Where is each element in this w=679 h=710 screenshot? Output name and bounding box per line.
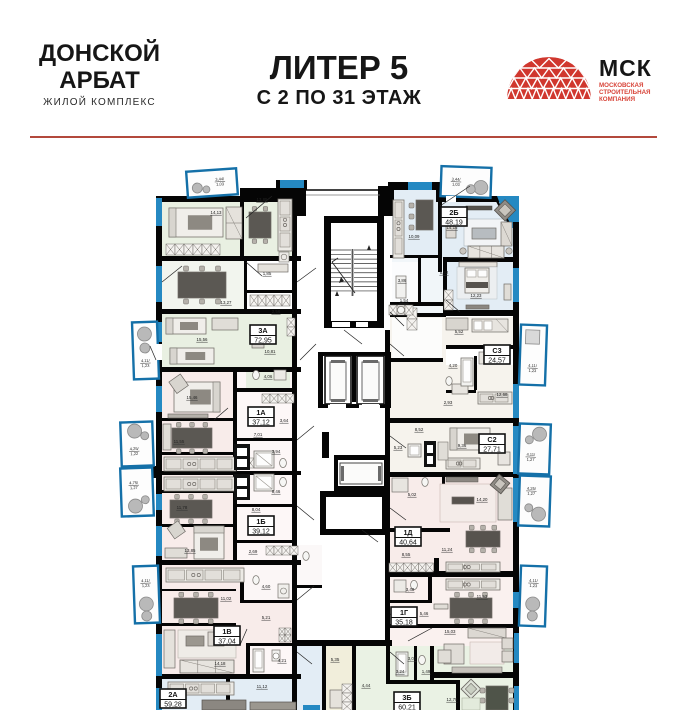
svg-text:10,09: 10,09 (409, 234, 421, 239)
svg-text:12,79: 12,79 (447, 697, 459, 702)
svg-text:2Б: 2Б (449, 208, 458, 217)
svg-text:5,46: 5,46 (420, 611, 429, 616)
svg-text:37,04: 37,04 (218, 638, 236, 645)
svg-text:14,13: 14,13 (211, 210, 223, 215)
svg-text:7,01: 7,01 (254, 432, 263, 437)
svg-text:3,24: 3,24 (396, 669, 405, 674)
svg-text:13,27: 13,27 (221, 300, 233, 305)
svg-text:1,23: 1,23 (529, 583, 538, 588)
svg-text:3А: 3А (258, 326, 267, 335)
svg-text:1,54: 1,54 (400, 298, 409, 303)
svg-text:12,23: 12,23 (471, 293, 483, 298)
svg-text:24,57: 24,57 (488, 357, 506, 364)
svg-text:5,21: 5,21 (262, 615, 271, 620)
svg-text:4,21: 4,21 (278, 658, 287, 663)
svg-text:1,22: 1,22 (130, 451, 139, 456)
svg-text:15,03: 15,03 (445, 629, 457, 634)
svg-text:37,12: 37,12 (252, 419, 270, 426)
svg-text:60,21: 60,21 (398, 704, 416, 710)
svg-text:2,56: 2,56 (272, 309, 281, 314)
svg-text:С2: С2 (487, 435, 496, 444)
svg-text:1,27: 1,27 (527, 491, 536, 496)
svg-text:4,06: 4,06 (264, 374, 273, 379)
svg-text:1А: 1А (256, 408, 265, 417)
svg-text:11,53: 11,53 (477, 594, 488, 599)
svg-text:8,46: 8,46 (272, 489, 281, 494)
svg-text:1Б: 1Б (256, 517, 265, 526)
svg-text:3,94: 3,94 (272, 449, 281, 454)
svg-text:1В: 1В (222, 627, 231, 636)
svg-text:3,86: 3,86 (398, 278, 407, 283)
svg-text:1Д: 1Д (403, 528, 412, 537)
svg-text:1,85: 1,85 (263, 271, 272, 276)
svg-text:1Г: 1Г (400, 608, 408, 617)
svg-text:14,18: 14,18 (215, 661, 227, 666)
svg-text:3,64: 3,64 (280, 418, 289, 423)
svg-text:59,28: 59,28 (164, 701, 182, 708)
svg-text:72,95: 72,95 (254, 337, 272, 344)
svg-text:1,49: 1,49 (422, 669, 431, 674)
svg-text:11,55: 11,55 (174, 439, 185, 444)
svg-text:8,55: 8,55 (402, 552, 411, 557)
svg-text:2А: 2А (168, 690, 177, 699)
svg-text:14,20: 14,20 (477, 497, 489, 502)
svg-text:13,85: 13,85 (185, 548, 197, 553)
svg-text:40,64: 40,64 (399, 539, 417, 546)
svg-text:С3: С3 (492, 346, 501, 355)
svg-text:2,93: 2,93 (444, 400, 453, 405)
svg-text:1,27: 1,27 (130, 485, 139, 490)
svg-text:27,71: 27,71 (483, 446, 501, 453)
svg-text:35,18: 35,18 (395, 619, 413, 626)
svg-text:5,32: 5,32 (440, 270, 449, 275)
svg-text:5,02: 5,02 (408, 492, 417, 497)
svg-text:4,20: 4,20 (449, 363, 458, 368)
svg-text:5,52: 5,52 (455, 329, 464, 334)
svg-text:13,85: 13,85 (257, 197, 269, 202)
svg-text:1,23: 1,23 (142, 363, 151, 368)
svg-text:1,03: 1,03 (452, 182, 461, 187)
svg-text:9,36: 9,36 (458, 443, 467, 448)
svg-text:4,44: 4,44 (362, 683, 371, 688)
svg-text:11,24: 11,24 (442, 547, 453, 552)
svg-text:39,12: 39,12 (252, 528, 270, 535)
svg-text:11,12: 11,12 (257, 684, 268, 689)
svg-text:8,52: 8,52 (415, 427, 424, 432)
svg-text:12,68: 12,68 (497, 392, 509, 397)
svg-text:4,60: 4,60 (262, 584, 271, 589)
svg-text:11,78: 11,78 (177, 505, 188, 510)
svg-text:15,46: 15,46 (187, 395, 199, 400)
svg-text:3,04: 3,04 (408, 656, 417, 661)
svg-text:8,04: 8,04 (252, 507, 261, 512)
svg-text:2,69: 2,69 (249, 549, 258, 554)
svg-text:1,23: 1,23 (528, 368, 537, 373)
svg-text:1,23: 1,23 (142, 583, 151, 588)
svg-text:10,81: 10,81 (265, 349, 277, 354)
svg-text:5,35: 5,35 (331, 657, 340, 662)
svg-text:14,15: 14,15 (447, 225, 459, 230)
svg-text:1,27: 1,27 (527, 457, 536, 462)
svg-text:3Б: 3Б (402, 693, 411, 702)
svg-text:15,56: 15,56 (197, 337, 209, 342)
svg-text:3,48: 3,48 (406, 587, 415, 592)
svg-text:11,02: 11,02 (221, 596, 232, 601)
svg-text:1,03: 1,03 (216, 181, 225, 187)
svg-text:5,23: 5,23 (394, 445, 403, 450)
